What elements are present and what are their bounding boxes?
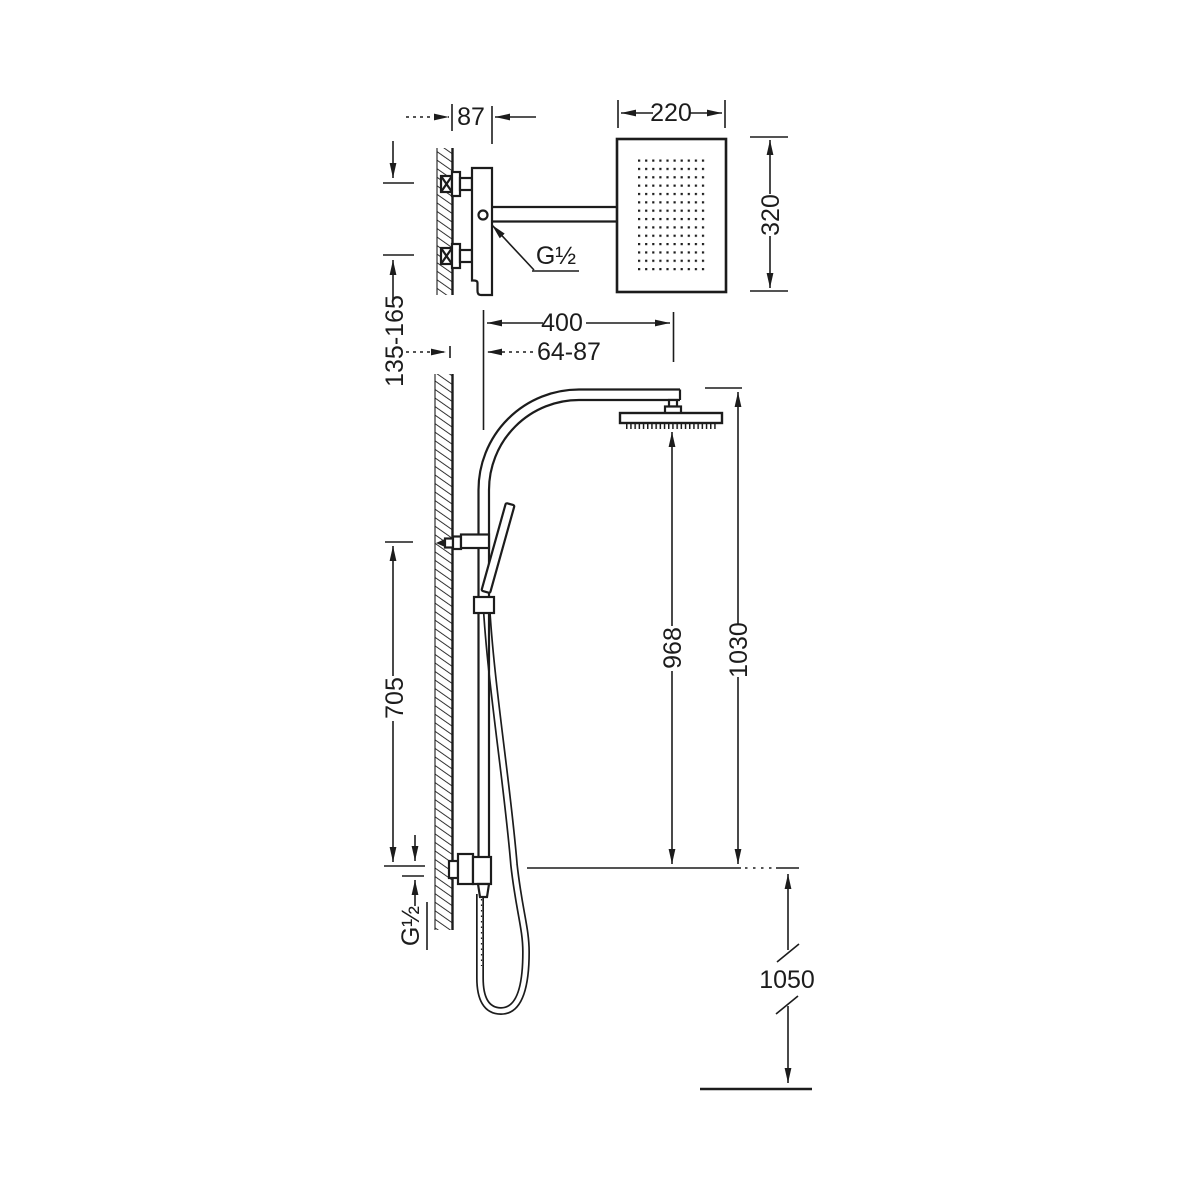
- nozzle-dot-grid: [637, 158, 705, 271]
- dim-inlet-spacing-label: 135-165: [381, 295, 409, 387]
- dim-base-height: 1050: [700, 874, 815, 1089]
- inlet-fitting-bottom: [441, 244, 472, 268]
- slider-bracket: [474, 597, 494, 613]
- dim-head-height-label: 320: [757, 194, 785, 236]
- dim-wall-to-column: 64-87: [406, 338, 601, 366]
- dim-arm-offset-label: 87: [457, 103, 485, 131]
- dim-inlet-spacing: 135-165: [381, 141, 414, 387]
- label-bottom-thread-text: G½: [397, 906, 425, 946]
- dim-top-to-base: 1030: [705, 388, 753, 864]
- dim-head-height: 320: [750, 137, 788, 291]
- drawing-canvas: 87 220 320 G½ 135-165: [0, 0, 1200, 1200]
- wall-hatch-upper: [437, 148, 453, 295]
- rain-head-front: [617, 139, 726, 292]
- shower-hose: [480, 598, 526, 1011]
- wall-hatch-lower: [435, 374, 453, 930]
- technical-drawing: 87 220 320 G½ 135-165: [0, 0, 1200, 1200]
- dim-holder-to-outlet-label: 705: [381, 677, 409, 719]
- label-top-thread-text: G½: [536, 242, 576, 270]
- dim-holder-to-outlet: 705: [381, 542, 425, 866]
- rain-head-side: [620, 400, 722, 429]
- dim-head-to-base: 968: [659, 432, 687, 864]
- spray-nozzles: [626, 424, 717, 429]
- shower-arm-top-view: [492, 207, 617, 222]
- arm-inlet-port: [479, 211, 488, 220]
- dim-head-width-label: 220: [650, 99, 692, 127]
- label-top-thread: G½: [492, 225, 579, 271]
- dim-head-width: 220: [618, 99, 725, 128]
- mixer-body: [472, 168, 492, 295]
- dim-head-to-base-label: 968: [659, 627, 687, 669]
- dim-arm-reach-label: 400: [541, 309, 583, 337]
- inlet-fitting-top: [441, 172, 472, 196]
- dim-top-to-base-label: 1030: [725, 622, 753, 678]
- wall-outlet-elbow: [449, 854, 491, 966]
- dim-wall-to-column-label: 64-87: [537, 338, 601, 366]
- dim-arm-offset: 87: [406, 103, 536, 144]
- dim-base-height-label: 1050: [759, 966, 815, 994]
- dim-outlet-thread: G½: [397, 835, 427, 950]
